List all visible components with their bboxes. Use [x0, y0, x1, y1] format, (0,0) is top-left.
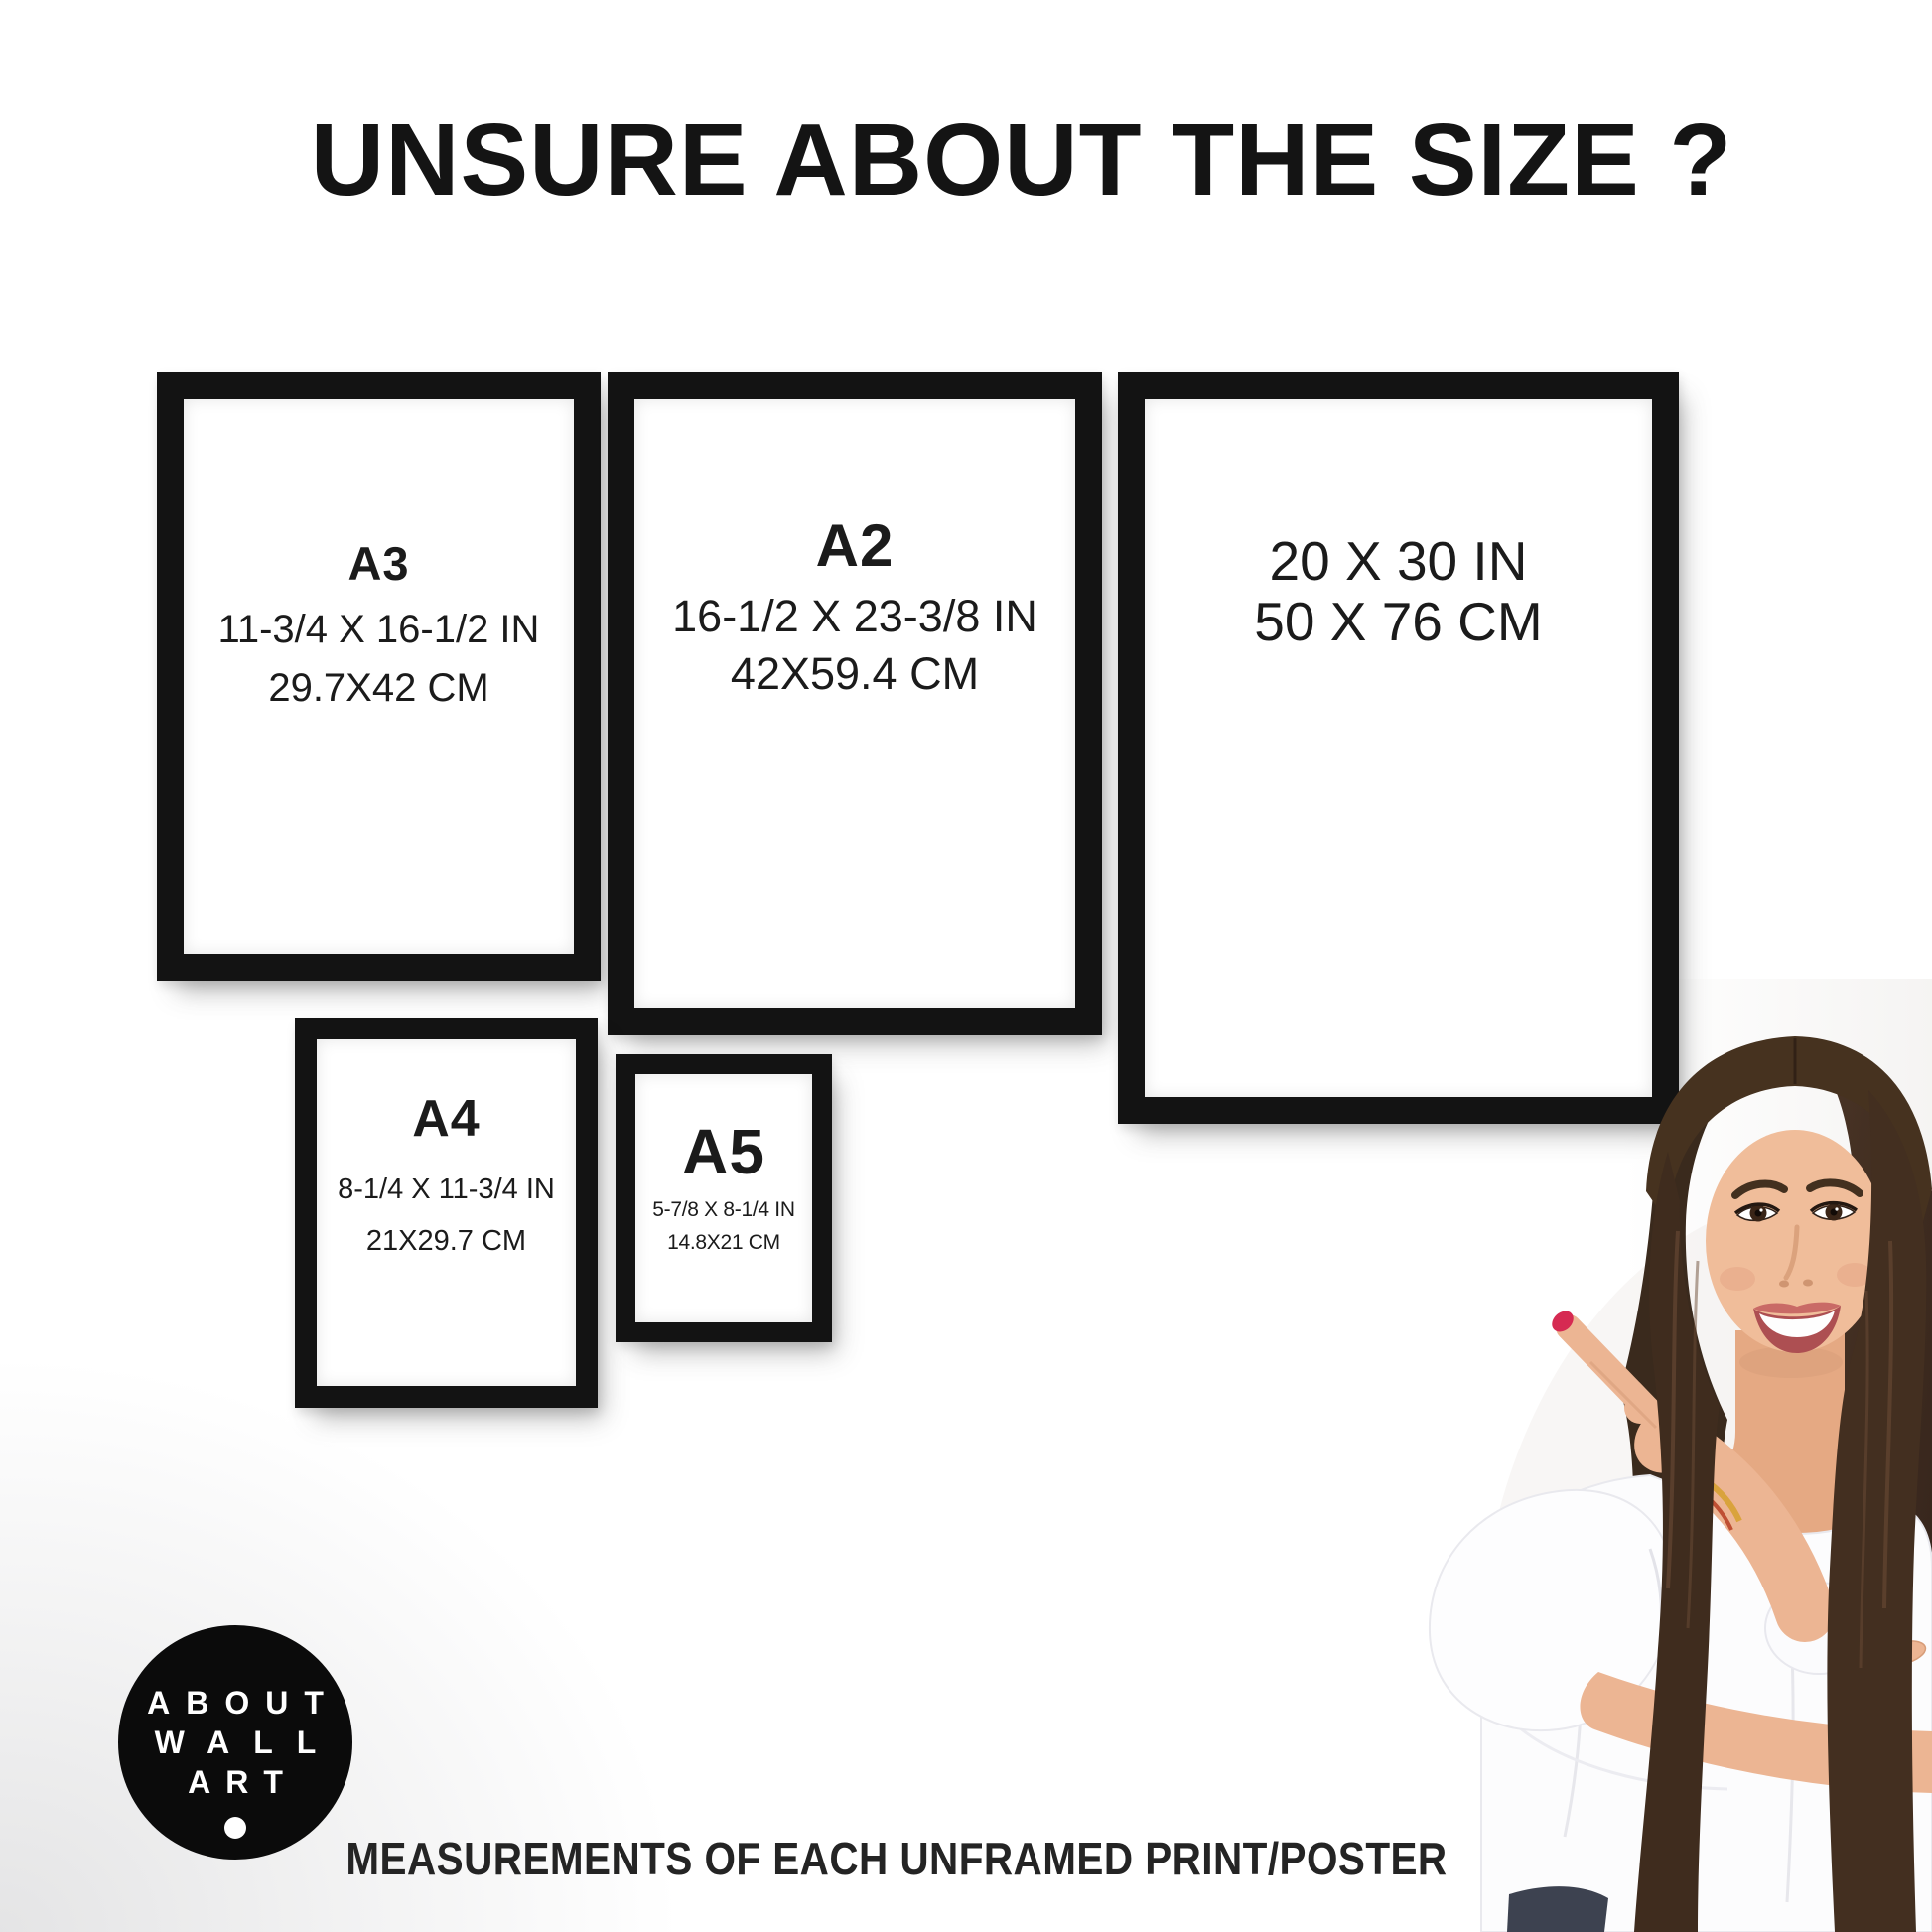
size-label: A3 [184, 536, 574, 591]
size-label: A4 [317, 1089, 576, 1149]
size-inches: 20 X 30 IN [1145, 531, 1652, 592]
frame-20x30-paper: 20 X 30 IN 50 X 76 CM [1145, 399, 1652, 1097]
frame-a5-text: A5 5-7/8 X 8-1/4 IN 14.8X21 CM [635, 1115, 812, 1259]
page-title: UNSURE ABOUT THE SIZE ? [0, 101, 1932, 218]
jeans [1507, 1886, 1608, 1932]
frame-a2-paper: A2 16-1/2 X 23-3/8 IN 42X59.4 CM [634, 399, 1075, 1008]
size-cm: 50 X 76 CM [1145, 592, 1652, 652]
woman-photo [1370, 1033, 1932, 1932]
logo-line-1: ABOUT [131, 1683, 340, 1723]
logo-line-2: WALL [131, 1723, 341, 1762]
size-inches: 16-1/2 X 23-3/8 IN [634, 588, 1075, 645]
frame-a3: A3 11-3/4 X 16-1/2 IN 29.7X42 CM [157, 372, 601, 981]
frame-a4-text: A4 8-1/4 X 11-3/4 IN 21X29.7 CM [317, 1089, 576, 1267]
frame-a2: A2 16-1/2 X 23-3/8 IN 42X59.4 CM [608, 372, 1102, 1035]
size-cm: 29.7X42 CM [184, 659, 574, 718]
size-label: A2 [634, 511, 1075, 580]
frame-a4: A4 8-1/4 X 11-3/4 IN 21X29.7 CM [295, 1018, 598, 1408]
size-cm: 14.8X21 CM [635, 1226, 812, 1259]
brand-logo: ABOUT WALL ART [118, 1625, 352, 1860]
size-label: A5 [635, 1115, 812, 1188]
frame-a5-paper: A5 5-7/8 X 8-1/4 IN 14.8X21 CM [635, 1074, 812, 1322]
size-inches: 5-7/8 X 8-1/4 IN [635, 1193, 812, 1226]
size-inches: 8-1/4 X 11-3/4 IN [317, 1165, 576, 1216]
size-inches: 11-3/4 X 16-1/2 IN [184, 601, 574, 659]
frame-a4-paper: A4 8-1/4 X 11-3/4 IN 21X29.7 CM [317, 1039, 576, 1386]
frame-a3-paper: A3 11-3/4 X 16-1/2 IN 29.7X42 CM [184, 399, 574, 954]
frame-20x30: 20 X 30 IN 50 X 76 CM [1118, 372, 1679, 1124]
frame-20x30-text: 20 X 30 IN 50 X 76 CM [1145, 531, 1652, 651]
frame-a2-text: A2 16-1/2 X 23-3/8 IN 42X59.4 CM [634, 511, 1075, 702]
frame-a3-text: A3 11-3/4 X 16-1/2 IN 29.7X42 CM [184, 536, 574, 718]
size-guide-poster: UNSURE ABOUT THE SIZE ? A3 11-3/4 X 16-1… [0, 0, 1932, 1932]
frame-a5: A5 5-7/8 X 8-1/4 IN 14.8X21 CM [616, 1054, 832, 1342]
size-cm: 21X29.7 CM [317, 1216, 576, 1268]
logo-line-3: ART [173, 1762, 298, 1802]
size-cm: 42X59.4 CM [634, 645, 1075, 703]
